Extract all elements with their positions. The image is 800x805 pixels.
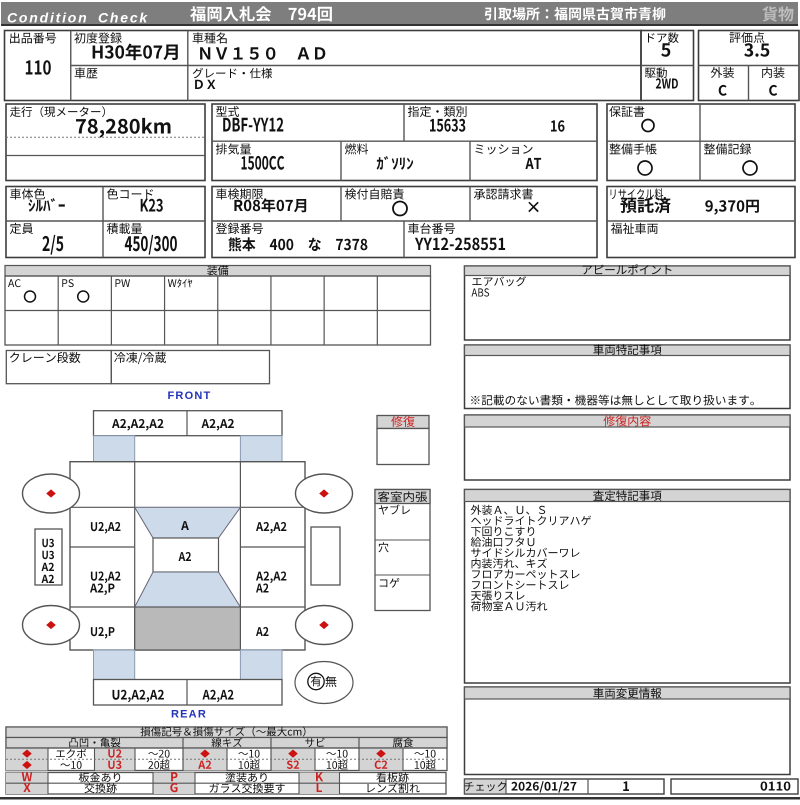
svg-text:Condition: Condition xyxy=(7,10,89,26)
svg-text:Check: Check xyxy=(98,10,149,26)
svg-text:FRONT: FRONT xyxy=(168,390,212,402)
svg-text:REAR: REAR xyxy=(171,709,207,721)
